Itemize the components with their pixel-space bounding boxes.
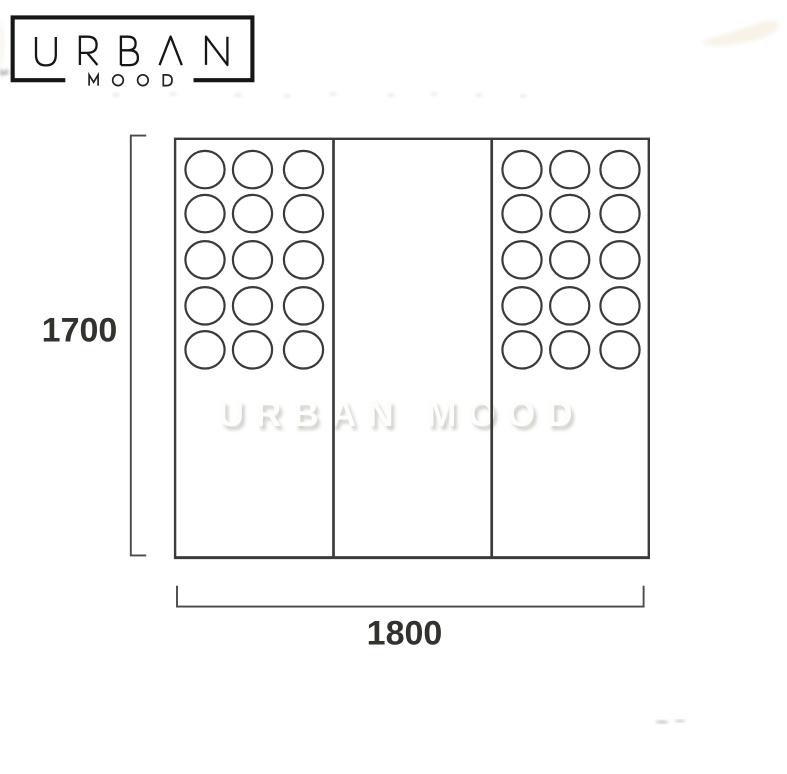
svg-text:1700: 1700 <box>42 312 118 350</box>
svg-text:1800: 1800 <box>367 615 443 653</box>
svg-text:URBAN MOOD: URBAN MOOD <box>218 393 584 434</box>
